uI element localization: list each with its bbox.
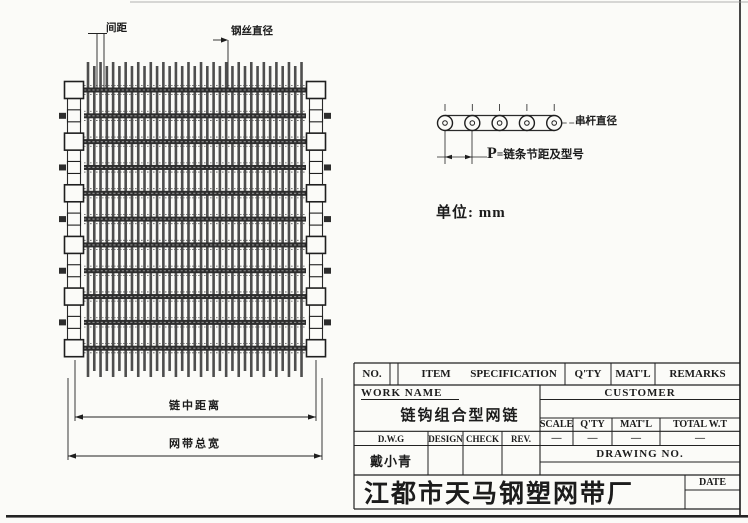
date-label: DATE <box>685 475 740 490</box>
rev-label: REV. <box>502 432 540 445</box>
drawing-sheet: 间距 钢丝直径 链中距离 网带总宽 串杆直径 P=链条节距及型号 单位: mm … <box>0 0 748 523</box>
qty-value: — <box>573 432 612 445</box>
total-wt-label: TOTAL W.T <box>660 418 740 431</box>
dwg-signature: 戴小青 <box>354 446 428 474</box>
col-header-no: NO. <box>354 363 390 385</box>
drawing-no-label: DRAWING NO. <box>540 445 740 462</box>
col-header-specification: SPECIFICATION <box>462 363 565 385</box>
matl-label: MAT'L <box>612 418 660 431</box>
work-name-label: WORK NAME <box>361 387 459 400</box>
col-header-qty: Q'TY <box>565 363 611 385</box>
col-header-remarks: REMARKS <box>655 363 740 385</box>
total-width-label: 网带总宽 <box>145 436 245 450</box>
col-header-matl: MAT'L <box>611 363 655 385</box>
pitch-label: 间距 <box>106 23 127 35</box>
chain-center-distance-label: 链中距离 <box>145 398 245 412</box>
scale-value: — <box>540 432 573 445</box>
rod-diameter-label: 串杆直径 <box>575 116 617 128</box>
qty-label: Q'TY <box>573 418 612 431</box>
total-wt-value: — <box>660 432 740 445</box>
design-label: DESIGN <box>428 432 463 445</box>
customer-label: CUSTOMER <box>540 385 740 400</box>
scale-label: SCALE <box>540 418 573 431</box>
matl-value: — <box>612 432 660 445</box>
col-header-item: ITEM <box>404 363 468 385</box>
unit-note: 单位: mm <box>436 205 506 222</box>
dwg-label: D.W.G <box>354 432 428 445</box>
company-name: 江都市天马钢塑网带厂 <box>364 476 684 508</box>
chain-pitch-formula-label: P=链条节距及型号 <box>487 145 584 163</box>
work-name-value: 链钩组合型网链 <box>385 401 535 427</box>
check-label: CHECK <box>463 432 502 445</box>
wire-diameter-label: 钢丝直径 <box>231 26 273 38</box>
